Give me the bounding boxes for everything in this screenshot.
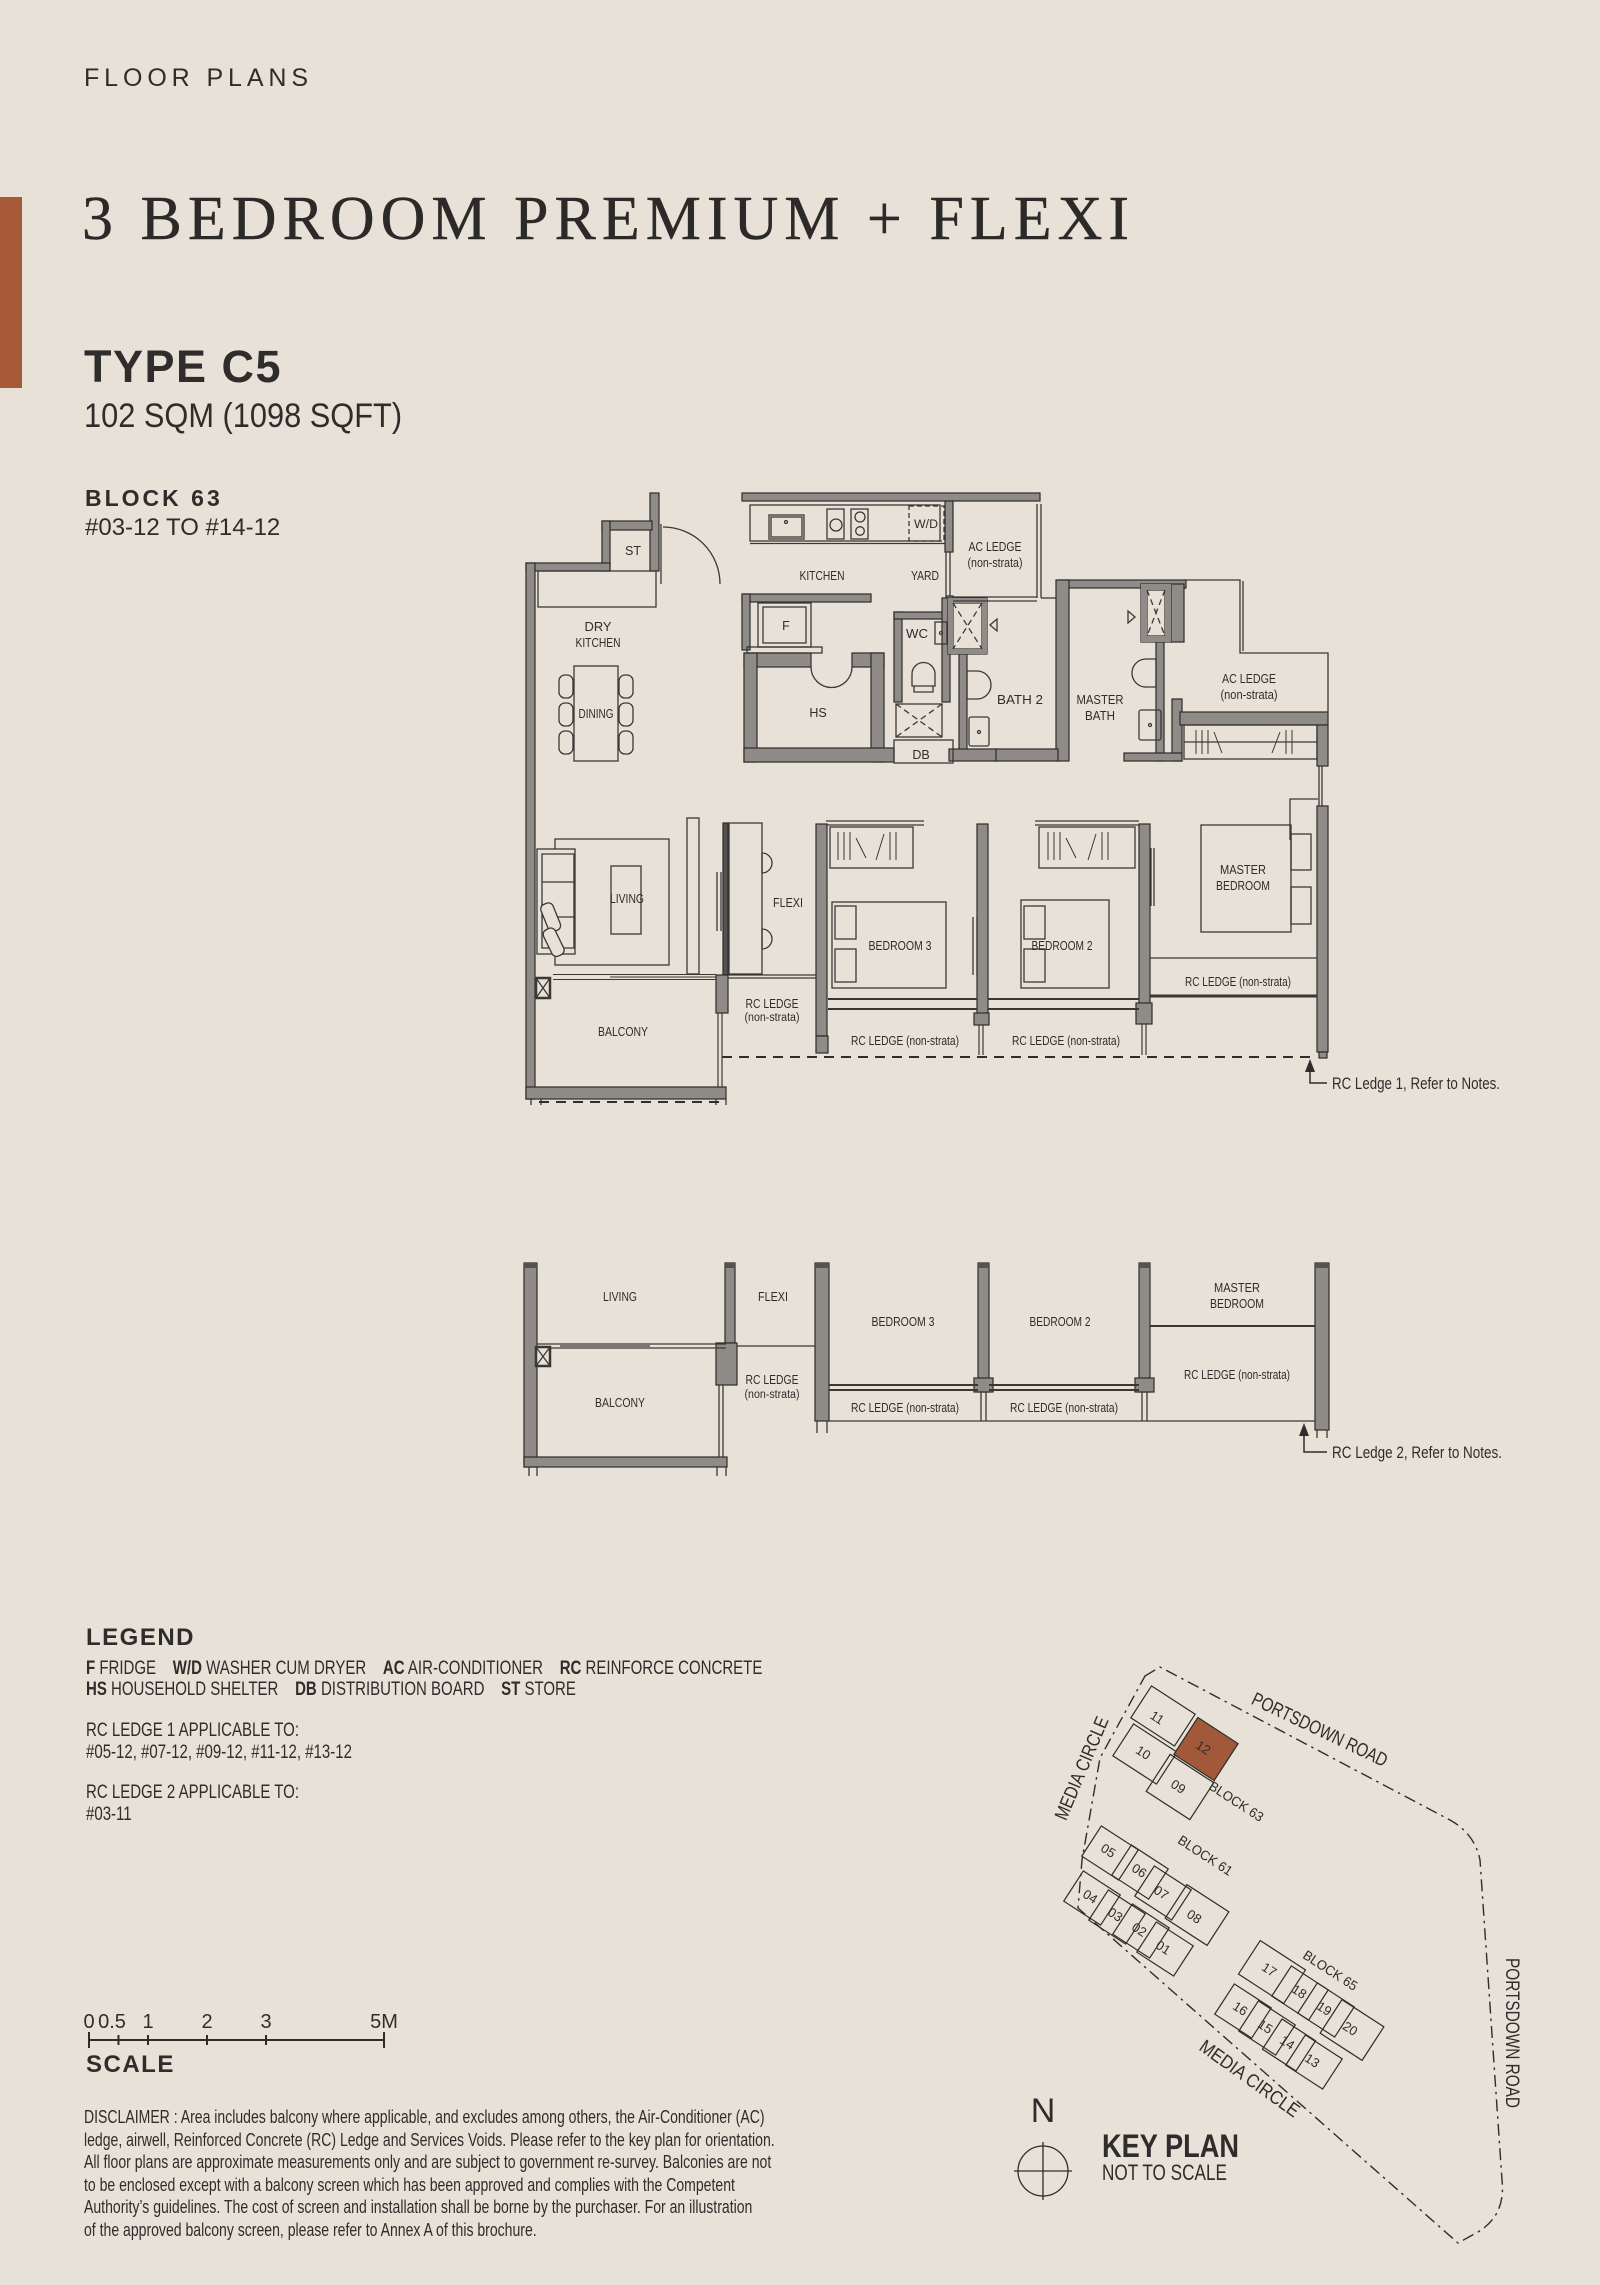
- svg-text:(non-strata): (non-strata): [745, 1012, 800, 1024]
- svg-text:14: 14: [1277, 2032, 1297, 2052]
- svg-text:N: N: [1031, 2092, 1056, 2130]
- svg-text:03: 03: [1105, 1904, 1125, 1924]
- svg-text:RC LEDGE (non-strata): RC LEDGE (non-strata): [1010, 1401, 1118, 1415]
- svg-text:BLOCK 61: BLOCK 61: [1175, 1832, 1235, 1878]
- svg-text:AC LEDGE: AC LEDGE: [969, 540, 1022, 554]
- svg-text:HS: HS: [809, 706, 826, 720]
- svg-text:AC LEDGE: AC LEDGE: [1222, 672, 1276, 686]
- svg-text:BALCONY: BALCONY: [598, 1025, 649, 1039]
- svg-text:(non-strata): (non-strata): [745, 1389, 800, 1401]
- svg-text:RC LEDGE (non-strata): RC LEDGE (non-strata): [851, 1401, 959, 1415]
- svg-text:PORTSDOWN ROAD: PORTSDOWN ROAD: [1501, 1958, 1522, 2108]
- svg-text:3: 3: [260, 2011, 271, 2033]
- svg-text:MASTER: MASTER: [1214, 1281, 1260, 1295]
- svg-text:BALCONY: BALCONY: [595, 1396, 646, 1410]
- svg-text:DRY: DRY: [585, 620, 613, 634]
- svg-text:BEDROOM 3: BEDROOM 3: [869, 939, 932, 953]
- svg-text:MEDIA CIRCLE: MEDIA CIRCLE: [1051, 1714, 1113, 1823]
- svg-text:W/D: W/D: [914, 519, 938, 531]
- svg-text:5M: 5M: [370, 2011, 398, 2033]
- svg-text:10: 10: [1133, 1742, 1153, 1762]
- svg-text:BATH 2: BATH 2: [997, 693, 1043, 707]
- svg-text:2: 2: [201, 2011, 212, 2033]
- svg-text:17: 17: [1259, 1959, 1279, 1979]
- svg-text:FLEXI: FLEXI: [773, 896, 803, 910]
- svg-text:01: 01: [1153, 1937, 1173, 1957]
- svg-text:YARD: YARD: [911, 569, 939, 583]
- svg-text:BEDROOM 2: BEDROOM 2: [1030, 1315, 1091, 1329]
- svg-text:ST: ST: [625, 544, 641, 558]
- svg-text:RC LEDGE: RC LEDGE: [746, 997, 799, 1011]
- svg-text:BLOCK 65: BLOCK 65: [1300, 1947, 1360, 1993]
- svg-text:KITCHEN: KITCHEN: [576, 636, 621, 650]
- svg-text:MASTER: MASTER: [1077, 693, 1124, 707]
- svg-text:MASTER: MASTER: [1220, 863, 1266, 877]
- svg-text:RC LEDGE (non-strata): RC LEDGE (non-strata): [1185, 975, 1291, 989]
- svg-text:(non-strata): (non-strata): [1221, 688, 1278, 702]
- svg-text:DB: DB: [912, 748, 929, 762]
- svg-text:1: 1: [142, 2011, 153, 2033]
- svg-text:0: 0: [83, 2011, 94, 2033]
- svg-text:LIVING: LIVING: [610, 892, 644, 906]
- svg-text:04: 04: [1080, 1886, 1100, 1906]
- svg-text:LIVING: LIVING: [603, 1290, 637, 1304]
- svg-text:RC Ledge 2, Refer to Notes.: RC Ledge 2, Refer to Notes.: [1332, 1443, 1502, 1462]
- svg-text:RC LEDGE (non-strata): RC LEDGE (non-strata): [851, 1034, 959, 1048]
- svg-text:11: 11: [1148, 1708, 1167, 1728]
- svg-text:RC LEDGE (non-strata): RC LEDGE (non-strata): [1184, 1368, 1290, 1382]
- svg-text:RC LEDGE: RC LEDGE: [746, 1373, 799, 1387]
- svg-text:FLEXI: FLEXI: [758, 1290, 788, 1304]
- svg-text:KITCHEN: KITCHEN: [800, 569, 845, 583]
- svg-text:13: 13: [1302, 2050, 1322, 2070]
- svg-text:BEDROOM: BEDROOM: [1210, 1297, 1264, 1311]
- svg-text:09: 09: [1168, 1776, 1188, 1796]
- svg-text:RC Ledge 1, Refer to Notes.: RC Ledge 1, Refer to Notes.: [1332, 1074, 1500, 1093]
- svg-text:BEDROOM 2: BEDROOM 2: [1032, 939, 1093, 953]
- svg-text:BLOCK 63: BLOCK 63: [1206, 1778, 1266, 1824]
- svg-text:0.5: 0.5: [98, 2011, 126, 2033]
- svg-text:WC: WC: [906, 627, 928, 641]
- svg-text:BEDROOM: BEDROOM: [1216, 879, 1270, 893]
- svg-text:08: 08: [1184, 1906, 1204, 1926]
- svg-text:16: 16: [1230, 1998, 1250, 2018]
- svg-text:DINING: DINING: [579, 707, 614, 721]
- svg-text:07: 07: [1151, 1882, 1171, 1902]
- svg-text:05: 05: [1098, 1840, 1118, 1860]
- svg-text:RC LEDGE (non-strata): RC LEDGE (non-strata): [1012, 1034, 1120, 1048]
- svg-text:20: 20: [1340, 2018, 1360, 2038]
- svg-text:(non-strata): (non-strata): [968, 556, 1023, 570]
- svg-text:BATH: BATH: [1085, 709, 1115, 723]
- svg-text:F: F: [782, 619, 790, 633]
- svg-text:BEDROOM 3: BEDROOM 3: [872, 1315, 935, 1329]
- svg-text:PORTSDOWN ROAD: PORTSDOWN ROAD: [1248, 1689, 1391, 1772]
